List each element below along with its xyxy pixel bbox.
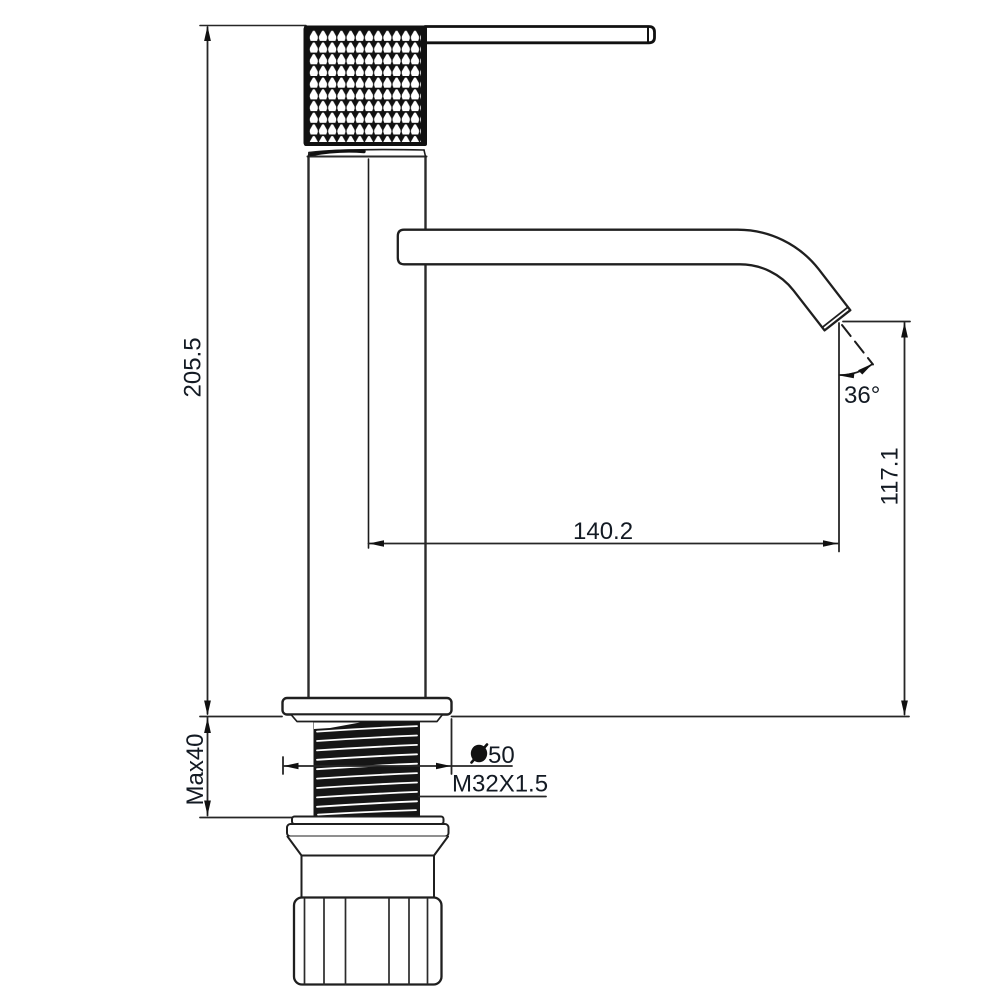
svg-text:36°: 36° [844,382,880,409]
svg-text:140.2: 140.2 [573,518,633,545]
svg-text:205.5: 205.5 [180,337,207,397]
svg-text:Max40: Max40 [182,733,209,805]
svg-text:117.1: 117.1 [877,447,904,505]
svg-text:50: 50 [488,742,515,769]
svg-text:M32X1.5: M32X1.5 [452,771,548,798]
